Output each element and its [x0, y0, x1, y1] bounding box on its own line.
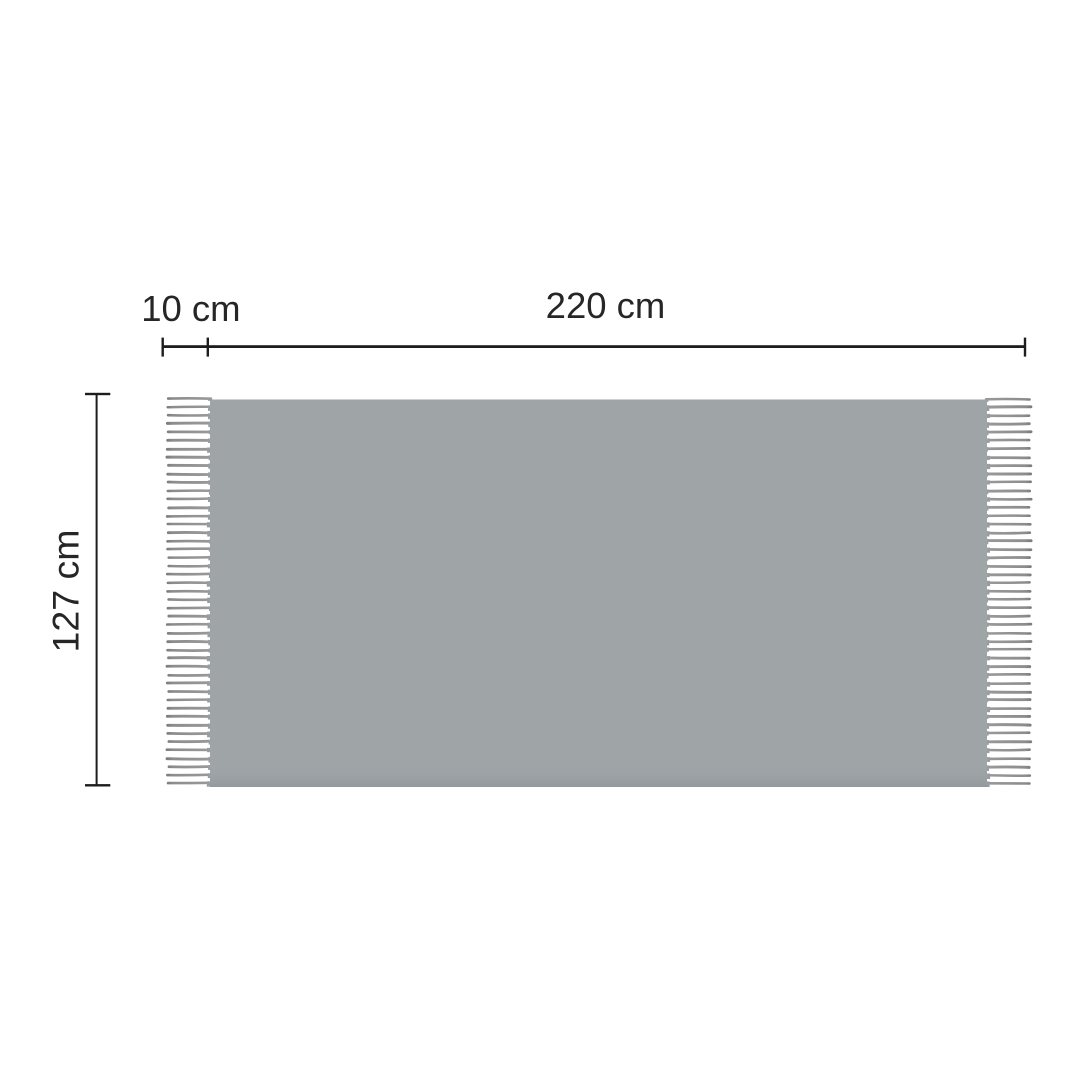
svg-text:127 cm: 127 cm [44, 530, 86, 653]
svg-text:220 cm: 220 cm [546, 285, 666, 326]
svg-text:10 cm: 10 cm [141, 288, 240, 329]
